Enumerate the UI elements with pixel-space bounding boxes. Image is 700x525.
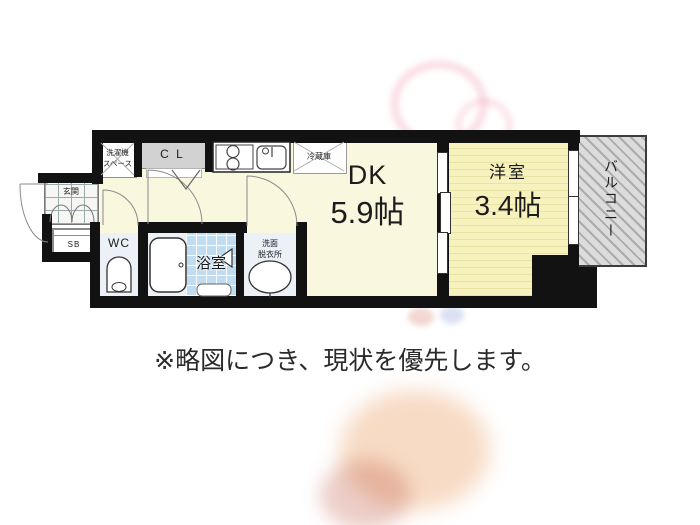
- shower-pan-icon: [197, 284, 231, 296]
- washer-space-label-line1: 洗濯機: [100, 147, 135, 157]
- washroom-label-line1: 洗面: [246, 238, 294, 248]
- bath-label: 浴室: [186, 252, 236, 272]
- fridge-label: 冷蔵庫: [293, 150, 345, 162]
- entrance-label: 玄関: [50, 186, 92, 196]
- entrance-step-arcs: [50, 205, 94, 222]
- disclaimer-note: ※略図につき、現状を優先します。: [0, 340, 700, 378]
- dk-room-label: DK: [300, 160, 435, 190]
- toilet-icon: [107, 257, 131, 292]
- closet-label: C L: [141, 145, 204, 163]
- dk-room-size: 5.9帖: [300, 192, 435, 226]
- bathtub-icon: [150, 238, 186, 292]
- floorplan-image: DK 5.9帖 洋室 3.4帖 バルコニー 浴室 洗面 脱衣所 WC 玄関 SB…: [0, 0, 700, 525]
- wc-door-arc: [103, 190, 138, 225]
- washroom-door-arc: [247, 176, 297, 226]
- kitchen-counter-icon: [213, 142, 290, 172]
- entrance-door-arc: [20, 184, 48, 242]
- shoebox-label: SB: [52, 238, 96, 250]
- washbasin-icon: [249, 261, 291, 298]
- western-room-size: 3.4帖: [453, 188, 563, 220]
- washer-space-label-line2: スペース: [100, 158, 135, 168]
- western-room-label: 洋室: [453, 160, 563, 180]
- balcony-label: バルコニー: [596, 148, 626, 250]
- washroom-label-line2: 脱衣所: [246, 249, 294, 259]
- wc-label: WC: [100, 236, 138, 250]
- fixtures-layer: [0, 0, 700, 525]
